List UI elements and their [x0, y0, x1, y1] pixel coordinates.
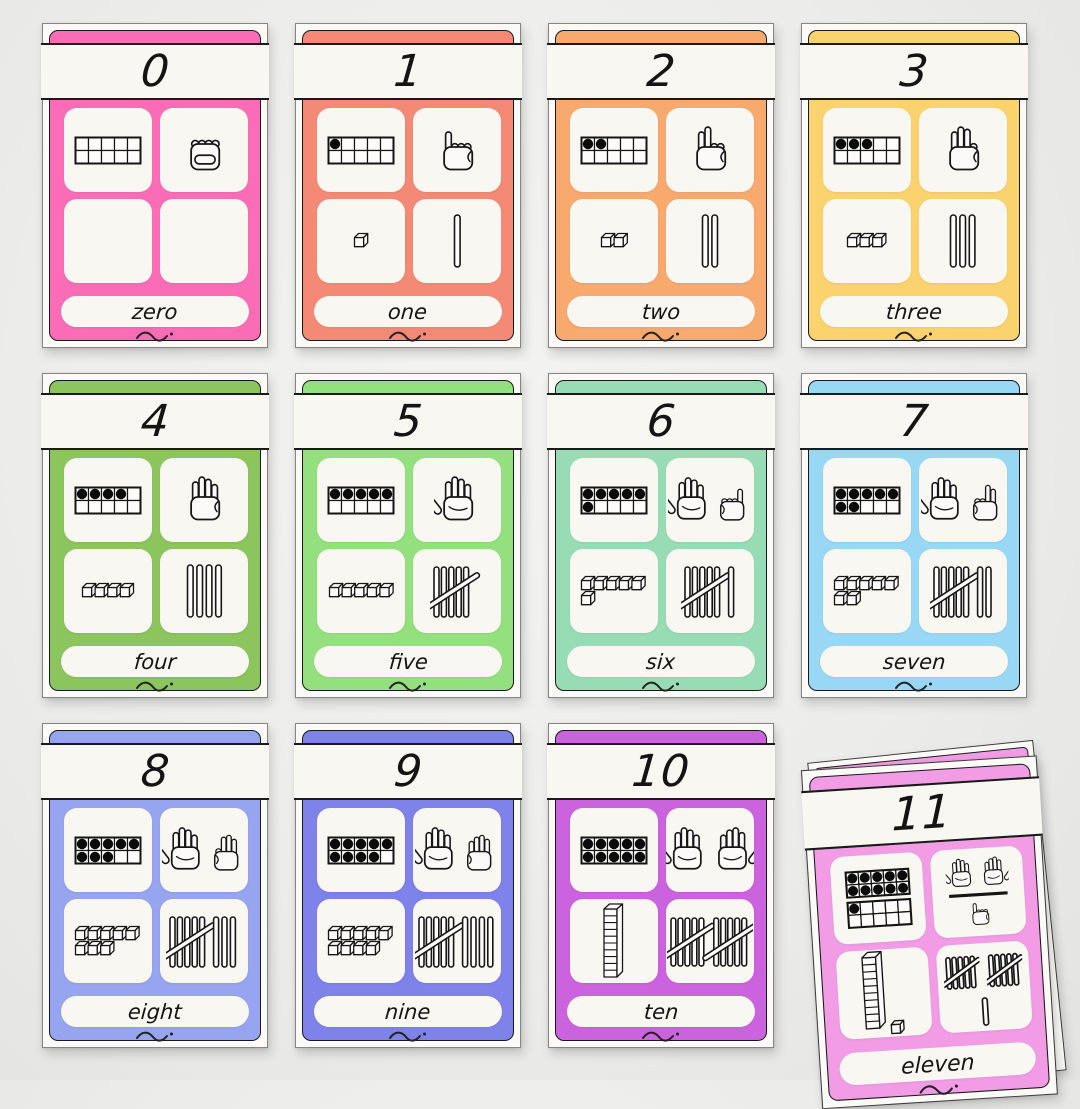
base-ten-blocks-icon [328, 582, 395, 600]
ten-frame-icon [843, 867, 910, 899]
base-ten-blocks-icon [859, 948, 908, 1039]
counting-hands-icon [666, 824, 754, 876]
word-pill: zero [61, 296, 249, 327]
ten-frame-panel [823, 108, 911, 192]
base-ten-blocks-icon [74, 925, 142, 958]
flashcard-0: 0 zero [42, 23, 268, 348]
ten-frame-panel [570, 458, 658, 542]
representation-panels [317, 108, 501, 283]
flashcard-5: 5 five [295, 373, 521, 698]
number-word: ten [643, 1000, 679, 1024]
representation-panels [823, 458, 1007, 633]
numeral: 9 [392, 750, 425, 794]
numeral-band: 5 [294, 393, 522, 450]
numeral: 7 [898, 400, 931, 444]
hand-icon [434, 123, 481, 177]
tally-marks-icon [166, 908, 241, 974]
blocks-panel [317, 899, 405, 983]
ten-frame-icon [833, 136, 901, 165]
flashcard-6: 6 six [548, 373, 774, 698]
hand-icon [714, 482, 752, 526]
number-word: eleven [901, 1049, 975, 1079]
hand-icon [977, 854, 1009, 890]
flashcard-10: 10 ten [548, 723, 774, 1048]
hands-panel [666, 808, 754, 892]
ten-frame-icon [580, 836, 648, 865]
hand-icon [666, 824, 709, 876]
numeral-band: 1 [294, 43, 522, 100]
number-word: three [885, 300, 943, 324]
number-word: four [133, 650, 177, 674]
tally-marks-icon [681, 558, 740, 624]
hand-icon [181, 123, 228, 177]
flashcard-4: 4 four [42, 373, 268, 698]
numeral-band: 4 [41, 393, 269, 450]
numeral-band: 2 [547, 43, 775, 100]
tally-panel [160, 899, 248, 983]
ten-frame-icon [833, 486, 901, 515]
ten-frame-icon [74, 836, 142, 865]
numeral-band: 9 [294, 743, 522, 800]
representation-panels [829, 845, 1032, 1040]
number-word: eight [127, 1000, 182, 1024]
ten-frame-icon [74, 136, 142, 165]
hand-icon [461, 832, 499, 876]
number-word: zero [131, 300, 178, 324]
base-ten-blocks-icon [602, 902, 626, 980]
tally-marks-icon [930, 558, 997, 624]
squiggle-icon [387, 1029, 429, 1043]
hand-icon [966, 897, 994, 929]
hand-icon [181, 473, 228, 527]
squiggle-icon [134, 329, 176, 343]
base-ten-blocks-icon [600, 232, 629, 250]
numeral: 3 [898, 50, 931, 94]
numeral: 11 [891, 788, 953, 838]
numeral-band: 7 [800, 393, 1028, 450]
tally-panel [413, 899, 501, 983]
tally-panel [666, 549, 754, 633]
tally-marks-icon [185, 562, 224, 620]
flashcard-3: 3 three [801, 23, 1027, 348]
ten-frame-icon [327, 136, 395, 165]
flashcard-9: 9 nine [295, 723, 521, 1048]
hand-icon [967, 482, 1005, 526]
tally-panel [936, 940, 1033, 1033]
base-ten-blocks-icon [327, 925, 395, 958]
representation-panels [64, 808, 248, 983]
word-pill: one [314, 296, 502, 327]
ten-frame-panel [64, 808, 152, 892]
blocks-panel [823, 199, 911, 283]
tally-marks-icon [942, 945, 1027, 1028]
base-ten-blocks-icon [846, 232, 887, 250]
hand-icon [434, 473, 481, 527]
ten-frame-icon [327, 836, 395, 865]
tally-marks-icon [452, 212, 463, 270]
numeral-band: 3 [800, 43, 1028, 100]
blocks-panel [317, 199, 405, 283]
squiggle-icon [917, 1081, 962, 1098]
hand-icon [940, 123, 987, 177]
flashcard-7: 7 seven [801, 373, 1027, 698]
word-pill: five [314, 646, 502, 677]
hand-icon [921, 474, 966, 526]
flashcard-2: 2 two [548, 23, 774, 348]
hands-panel [160, 808, 248, 892]
counting-hands-icon [415, 824, 500, 876]
squiggle-icon [640, 329, 682, 343]
squiggle-icon [893, 329, 935, 343]
hands-panel [413, 458, 501, 542]
squiggle-icon [893, 679, 935, 693]
squiggle-icon [640, 1029, 682, 1043]
ten-frame-icon [74, 486, 142, 515]
base-ten-blocks-icon [353, 232, 369, 250]
squiggle-icon [387, 329, 429, 343]
base-ten-blocks-icon [580, 575, 648, 608]
tally-panel [160, 549, 248, 633]
base-ten-blocks-icon [81, 582, 135, 600]
word-pill: two [567, 296, 755, 327]
hands-panel [413, 808, 501, 892]
squiggle-icon [640, 679, 682, 693]
ten-frame-panel [317, 458, 405, 542]
base-ten-blocks-icon [833, 575, 901, 608]
flashcard-11-tilted: 11 eleven [801, 755, 1058, 1109]
ten-frame-panel [829, 852, 926, 945]
ten-frame-icon [327, 486, 395, 515]
word-pill: three [820, 296, 1008, 327]
tally-panel [413, 199, 501, 283]
flashcard-11: 11 eleven [801, 755, 1058, 1109]
tally-panel [413, 549, 501, 633]
numeral: 8 [139, 750, 172, 794]
hands-panel [413, 108, 501, 192]
hand-icon [668, 474, 713, 526]
blocks-panel [570, 549, 658, 633]
numeral: 10 [630, 750, 692, 794]
blocks-panel [570, 199, 658, 283]
ten-frame-panel [570, 108, 658, 192]
ten-frame-icon [845, 897, 912, 929]
flashcard-board: 0 zero 1 one 2 two 3 [0, 0, 1080, 1080]
representation-panels [570, 458, 754, 633]
counting-hands-icon [945, 854, 1012, 930]
number-word: six [646, 650, 677, 674]
representation-panels [570, 808, 754, 983]
counting-hands-icon [162, 824, 247, 876]
numeral-band: 8 [41, 743, 269, 800]
squiggle-icon [134, 679, 176, 693]
hands-panel [919, 108, 1007, 192]
hands-panel [666, 458, 754, 542]
word-pill: six [567, 646, 755, 677]
word-pill: four [61, 646, 249, 677]
numeral: 0 [139, 50, 172, 94]
hands-panel [666, 108, 754, 192]
flashcard-1: 1 one [295, 23, 521, 348]
hand-icon [415, 824, 460, 876]
representation-panels [64, 108, 248, 283]
numeral-band: 0 [41, 43, 269, 100]
numeral: 5 [392, 400, 425, 444]
squiggle-icon [387, 679, 429, 693]
number-word: seven [882, 650, 946, 674]
tally-marks-icon [948, 212, 977, 270]
tally-panel [666, 899, 754, 983]
ten-frame-panel [64, 458, 152, 542]
hand-icon [208, 832, 246, 876]
number-word: five [388, 650, 429, 674]
squiggle-icon [134, 1029, 176, 1043]
hand-icon [162, 824, 207, 876]
numeral-band: 6 [547, 393, 775, 450]
ten-frame-panel [64, 108, 152, 192]
word-pill: nine [314, 996, 502, 1027]
blocks-panel [835, 947, 932, 1040]
tally-marks-icon [667, 909, 753, 973]
tally-marks-icon [700, 212, 720, 270]
counting-hands-icon [921, 474, 1006, 526]
hands-panel [919, 458, 1007, 542]
hand-icon [945, 856, 977, 892]
representation-panels [823, 108, 1007, 283]
ten-frame-icon [580, 486, 648, 515]
hand-icon [687, 123, 734, 177]
blocks-panel [317, 549, 405, 633]
numeral: 6 [645, 400, 678, 444]
blocks-panel [64, 899, 152, 983]
ten-frame-panel [317, 808, 405, 892]
numeral-band: 10 [547, 743, 775, 800]
hands-panel [160, 458, 248, 542]
word-pill: seven [820, 646, 1008, 677]
hand-icon [711, 824, 754, 876]
ten-frame-panel [823, 458, 911, 542]
numeral: 4 [139, 400, 172, 444]
blocks-panel [823, 549, 911, 633]
numeral: 1 [392, 50, 425, 94]
tally-panel [666, 199, 754, 283]
flashcard-8: 8 eight [42, 723, 268, 1048]
representation-panels [317, 458, 501, 633]
word-pill: ten [567, 996, 755, 1027]
tally-marks-icon [415, 908, 499, 974]
blocks-panel [64, 199, 152, 283]
tally-panel [919, 199, 1007, 283]
representation-panels [64, 458, 248, 633]
number-word: nine [384, 1000, 431, 1024]
number-word: one [388, 300, 429, 324]
plus-line [949, 892, 1008, 898]
tally-panel [919, 549, 1007, 633]
ten-frame-icon [580, 136, 648, 165]
blocks-panel [570, 899, 658, 983]
ten-frame-panel [317, 108, 405, 192]
representation-panels [570, 108, 754, 283]
counting-hands-icon [668, 474, 753, 526]
hands-panel [160, 108, 248, 192]
tally-panel [160, 199, 248, 283]
number-word: two [641, 300, 681, 324]
ten-frame-panel [570, 808, 658, 892]
numeral: 2 [645, 50, 678, 94]
ten-frame-icon [843, 867, 912, 930]
blocks-panel [64, 549, 152, 633]
tally-marks-icon [430, 558, 484, 624]
word-pill: eight [61, 996, 249, 1027]
hands-panel [930, 845, 1027, 938]
representation-panels [317, 808, 501, 983]
